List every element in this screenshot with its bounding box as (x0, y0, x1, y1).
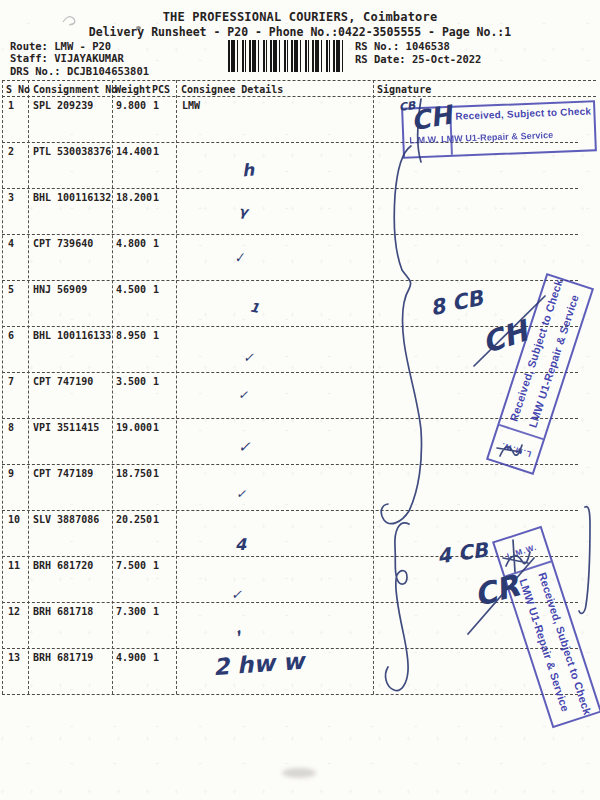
row-weight: 18.200 (116, 192, 152, 203)
row-consignment-no: VPI 3511415 (33, 422, 99, 433)
row-pcs: 1 (153, 652, 159, 663)
row-pcs: 1 (153, 514, 159, 525)
handwritten-tick: ✓ (243, 350, 254, 365)
row-sno: 10 (8, 514, 20, 525)
row-weight: 7.300 (116, 606, 146, 617)
row-weight: 4.900 (116, 652, 146, 663)
row-pcs: 1 (153, 376, 159, 387)
row-weight: 7.500 (116, 560, 146, 571)
row-consignee: LMW (182, 100, 200, 111)
row-consignment-no: SLV 3887086 (33, 514, 99, 525)
row-weight: 18.750 (116, 468, 152, 479)
barcode-icon (228, 40, 345, 72)
scan-smudge (282, 768, 316, 778)
handwritten-tick: h (241, 160, 255, 181)
document-title: THE PROFESSIONAL COURIERS, Coimbatore (0, 10, 600, 24)
handwritten-tick: ✓ (236, 487, 246, 501)
row-sno: 4 (8, 238, 14, 249)
row-consignment-no: CPT 747189 (33, 468, 93, 479)
handwritten-tick: 4 (235, 535, 246, 554)
stamp-end-label: L.M.W. (499, 440, 532, 458)
row-pcs: 1 (153, 560, 159, 571)
row-consignment-no: SPL 209239 (33, 100, 93, 111)
col-header-consignment: Consignment No (33, 84, 117, 95)
staff-field: Staff: VIJAYAKUMAR (10, 52, 124, 64)
handwritten-tick: ✓ (238, 438, 251, 456)
pencil-mark (136, 26, 141, 30)
table-row: 9CPT 74718918.7501 (0, 464, 600, 510)
row-consignment-no: BHL 100116133 (33, 330, 111, 341)
table-hline (2, 80, 596, 81)
row-sno: 11 (8, 560, 20, 571)
row-weight: 9.800 (116, 100, 146, 111)
col-header-pcs: PCS (152, 84, 170, 95)
row-weight: 20.250 (116, 514, 152, 525)
row-sno: 13 (8, 652, 20, 663)
row-sno: 3 (8, 192, 14, 203)
handwritten-tick: ✓ (231, 587, 242, 602)
row-weight: 4.800 (116, 238, 146, 249)
row-pcs: 1 (153, 330, 159, 341)
row-pcs: 1 (153, 422, 159, 433)
row-weight: 8.950 (116, 330, 146, 341)
col-header-signature: Signature (377, 84, 431, 95)
handwritten-tick: ✓ (238, 388, 248, 402)
row-consignment-no: CPT 747190 (33, 376, 93, 387)
row-sno: 5 (8, 284, 14, 295)
table-row: 4CPT 7396404.8001 (0, 234, 600, 280)
row-consignment-no: CPT 739640 (33, 238, 93, 249)
row-sno: 9 (8, 468, 14, 479)
row-sno: 2 (8, 146, 14, 157)
col-header-consignee: Consignee Details (181, 84, 283, 95)
row-pcs: 1 (153, 284, 159, 295)
rs-date-field: RS Date: 25-Oct-2022 (355, 53, 481, 65)
row-consignment-no: BRH 681718 (33, 606, 93, 617)
row-weight: 19.000 (116, 422, 152, 433)
row-weight: 3.500 (116, 376, 146, 387)
row-consignment-no: BRH 681719 (33, 652, 93, 663)
handwritten-tick: ✓ (233, 249, 246, 266)
table-row: 3BHL 10011613218.2001 (0, 188, 600, 234)
row-consignment-no: PTL 530038376 (33, 146, 111, 157)
row-weight: 4.500 (116, 284, 146, 295)
row-pcs: 1 (153, 238, 159, 249)
table-row: 12BRH 6817187.3001 (0, 602, 600, 648)
stamp-line1: Received, Subject to Check (455, 105, 591, 121)
rs-number-field: RS No.: 1046538 (355, 40, 450, 52)
row-weight: 14.400 (116, 146, 152, 157)
row-sno: 7 (8, 376, 14, 387)
route-field: Route: LMW - P20 (10, 40, 111, 52)
row-pcs: 1 (153, 468, 159, 479)
row-consignment-no: BRH 681720 (33, 560, 93, 571)
col-header-weight: Weight (115, 84, 151, 95)
row-pcs: 1 (153, 146, 159, 157)
row-pcs: 1 (153, 100, 159, 111)
row-pcs: 1 (153, 606, 159, 617)
row-pcs: 1 (153, 192, 159, 203)
document-subtitle: Delivery Runsheet - P20 - Phone No.:0422… (0, 25, 600, 39)
row-sno: 8 (8, 422, 14, 433)
col-header-sno: S No (6, 84, 30, 95)
drs-number-field: DRS No.: DCJB104653801 (10, 65, 149, 77)
row-sno: 12 (8, 606, 20, 617)
row-sno: 1 (8, 100, 14, 111)
handwritten-tick: γ (238, 204, 248, 220)
row-consignment-no: BHL 100116132 (33, 192, 111, 203)
row-sno: 6 (8, 330, 14, 341)
table-hline (2, 694, 578, 695)
stamp-end-label: L.M.W. (506, 543, 539, 561)
row-consignment-no: HNJ 56909 (33, 284, 87, 295)
